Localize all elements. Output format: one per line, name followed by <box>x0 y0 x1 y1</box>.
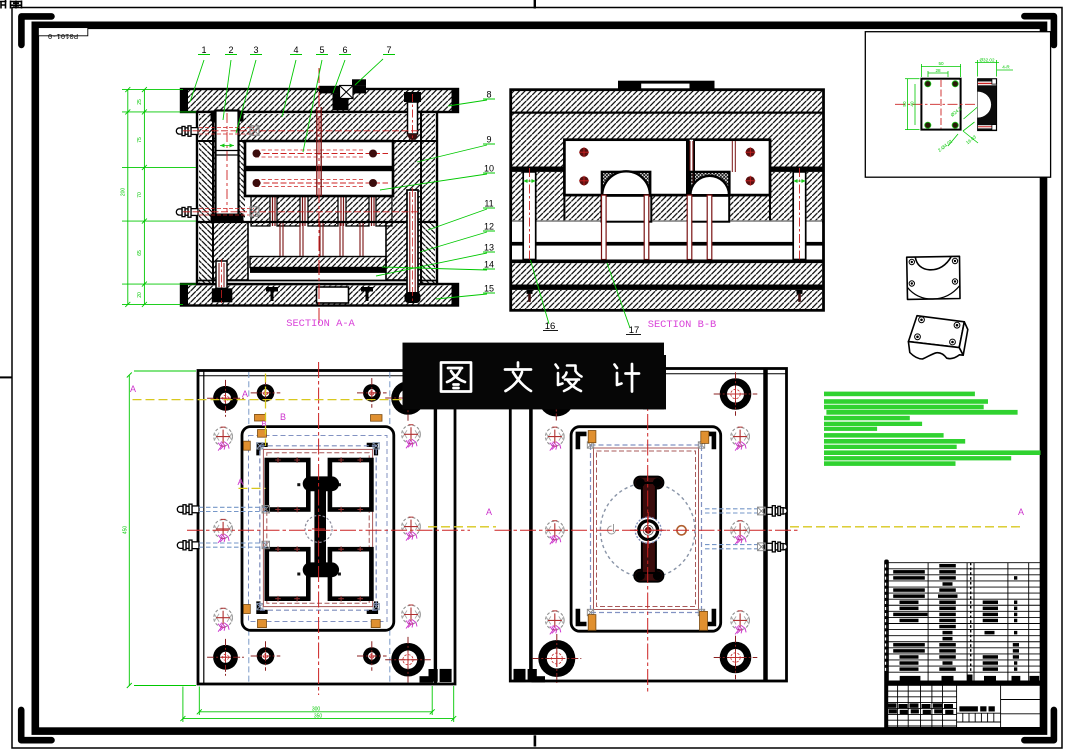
svg-text:5: 5 <box>319 45 324 55</box>
svg-text:300: 300 <box>312 707 321 713</box>
svg-text:13: 13 <box>484 243 494 253</box>
svg-text:B: B <box>261 419 266 428</box>
svg-text:10: 10 <box>484 164 494 174</box>
svg-text:8: 8 <box>486 90 491 100</box>
svg-text:6: 6 <box>342 45 347 55</box>
svg-text:SECTION A-A: SECTION A-A <box>286 318 355 330</box>
svg-text:350: 350 <box>314 713 323 719</box>
svg-text:14: 14 <box>484 260 494 270</box>
svg-text:25: 25 <box>137 99 143 105</box>
svg-text:1: 1 <box>201 45 206 55</box>
svg-text:28: 28 <box>935 68 941 73</box>
svg-text:A: A <box>486 507 492 517</box>
svg-text:SECTION B-B: SECTION B-B <box>648 319 717 331</box>
svg-text:12: 12 <box>484 222 494 232</box>
svg-text:B: B <box>280 412 286 422</box>
svg-text:P0101-0: P0101-0 <box>48 31 78 39</box>
svg-text:40: 40 <box>910 101 915 107</box>
svg-text:450: 450 <box>123 526 129 535</box>
svg-text:11: 11 <box>484 199 493 209</box>
svg-text:4-R: 4-R <box>1002 65 1010 70</box>
svg-text:3: 3 <box>253 45 258 55</box>
svg-text:50: 50 <box>902 101 907 107</box>
svg-text:17: 17 <box>629 325 640 336</box>
svg-text:A: A <box>242 389 248 399</box>
svg-text:65: 65 <box>137 250 143 256</box>
svg-text:Ø32.02: Ø32.02 <box>979 58 995 63</box>
svg-text:9: 9 <box>486 135 491 145</box>
svg-text:75: 75 <box>137 137 143 143</box>
svg-text:2: 2 <box>228 45 233 55</box>
svg-text:50: 50 <box>938 61 944 66</box>
svg-text:20: 20 <box>137 292 143 298</box>
svg-text:16: 16 <box>545 321 556 332</box>
svg-text:4: 4 <box>293 45 298 55</box>
svg-text:200: 200 <box>121 188 127 197</box>
svg-text:A: A <box>130 384 136 394</box>
svg-text:7: 7 <box>386 45 391 55</box>
svg-text:A: A <box>237 477 243 487</box>
svg-text:A: A <box>1018 507 1024 517</box>
svg-text:70: 70 <box>137 192 143 198</box>
svg-text:15: 15 <box>484 284 494 294</box>
